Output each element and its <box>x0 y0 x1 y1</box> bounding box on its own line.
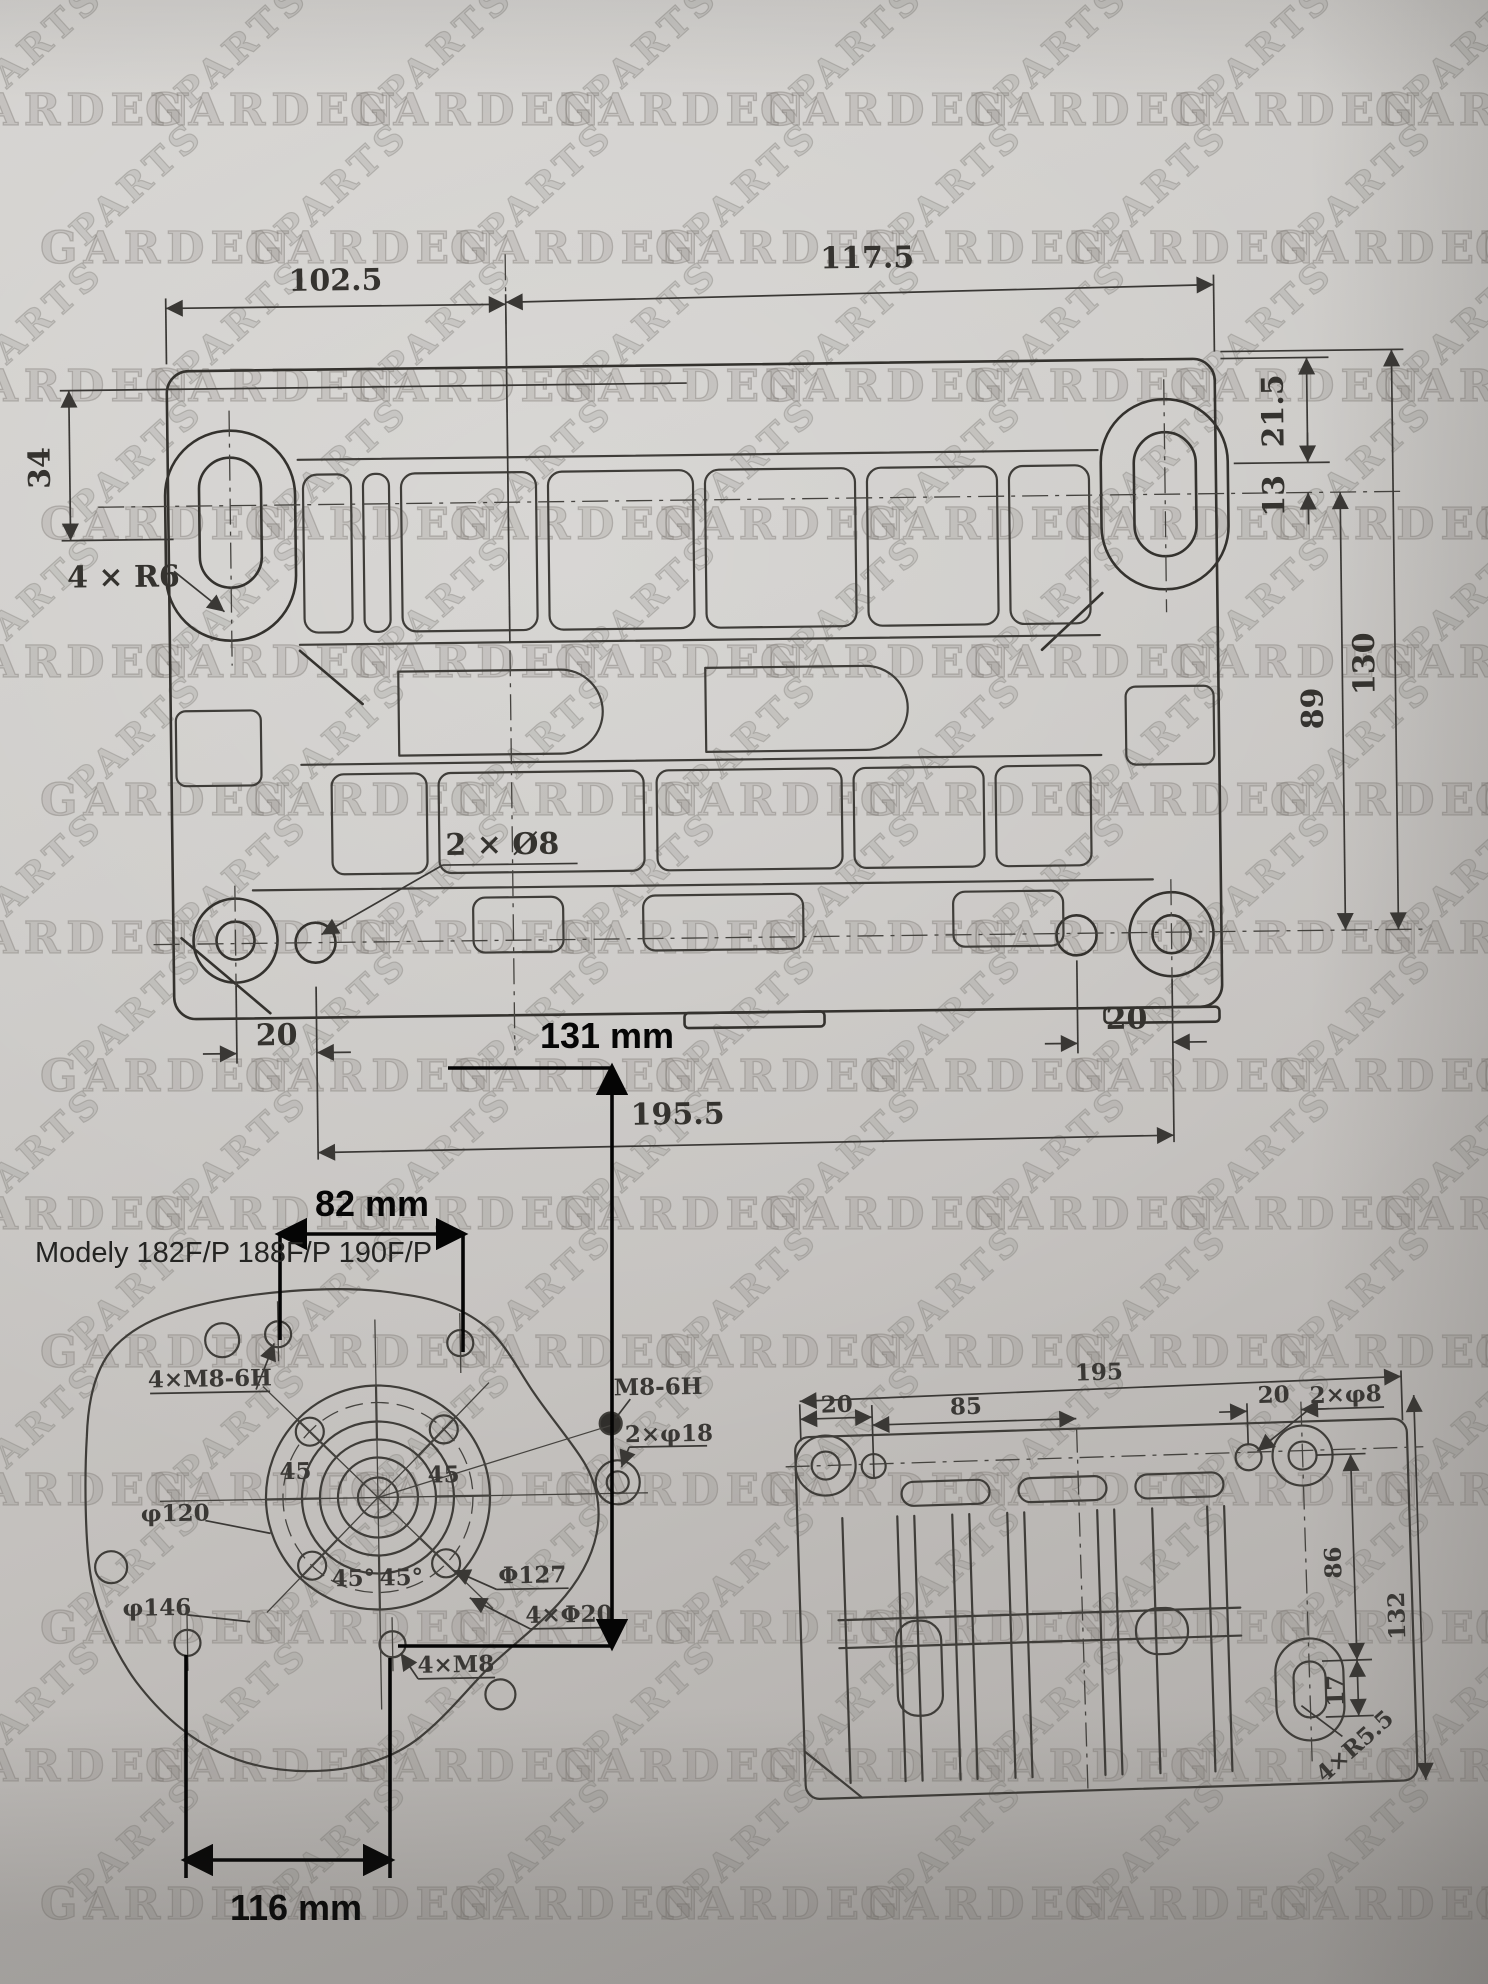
base-view-drawing: 20 85 195 20 2×φ8 86 132 17 4×R5.5 <box>783 1349 1434 1805</box>
dim-130: 130 <box>1347 632 1383 695</box>
base-dim-17: 17 <box>1321 1674 1349 1707</box>
base-dim-132: 132 <box>1383 1591 1411 1640</box>
angle-45-a: 45 <box>279 1458 311 1486</box>
label-4xphi20: 4×Φ20 <box>525 1600 613 1629</box>
top-view-drawing: 102.5 117.5 21.5 13 34 4 × R6 2 × Ø8 89 … <box>20 234 1426 1163</box>
dim-195-5: 195.5 <box>630 1097 724 1133</box>
label-phi146: φ146 <box>122 1594 191 1622</box>
dowel-hole <box>595 1460 640 1505</box>
base-dim-195: 195 <box>1074 1358 1123 1386</box>
dim-20-left: 20 <box>256 1018 298 1054</box>
technical-drawing-canvas: 102.5 117.5 21.5 13 34 4 × R6 2 × Ø8 89 … <box>0 0 1488 1984</box>
overlay-dim-131mm: 131 mm <box>540 1015 674 1056</box>
label-phi127: Φ127 <box>498 1561 567 1589</box>
label-4xr6: 4 × R6 <box>67 559 180 595</box>
label-m8-6h: M8-6H <box>613 1373 702 1402</box>
label-2xd8: 2 × Ø8 <box>445 827 559 863</box>
base-dim-85: 85 <box>949 1393 982 1421</box>
dim-34: 34 <box>22 447 58 489</box>
dim-117-5: 117.5 <box>820 240 914 276</box>
label-4xm8: 4×M8 <box>417 1651 494 1679</box>
label-phi120: φ120 <box>141 1499 210 1527</box>
scanned-page: PARTSGARDENPARTSGARDENPARTSGARDENPARTSGA… <box>0 0 1488 1984</box>
label-2xphi18: 2×φ18 <box>625 1420 714 1449</box>
crankcase-outline <box>82 1285 603 1775</box>
base-dim-20-left: 20 <box>820 1391 853 1419</box>
base-label-4xr5-5: 4×R5.5 <box>1311 1705 1399 1788</box>
angle-45-d: 45° <box>379 1564 423 1592</box>
overlay-dim-82mm: 82 mm <box>315 1183 429 1224</box>
rib-pattern <box>173 449 1217 957</box>
label-4xm8-6h: 4×M8-6H <box>148 1364 272 1393</box>
dim-102-5: 102.5 <box>288 263 382 299</box>
crankcase-view-drawing: 4×M8-6H M8-6H 2×φ18 φ120 φ146 45 45 45° … <box>82 1283 719 1775</box>
overlay-dim-116mm: 116 mm <box>230 1887 362 1928</box>
base-label-2xphi8: 2×φ8 <box>1309 1380 1382 1409</box>
models-caption: Modely 182F/P 188F/P 190F/P <box>35 1237 432 1269</box>
angle-45-b: 45 <box>427 1461 459 1489</box>
dim-20-right: 20 <box>1105 1001 1147 1037</box>
phi8-hole <box>1235 1444 1262 1471</box>
angle-45-c: 45° <box>331 1565 375 1593</box>
base-dim-86: 86 <box>1319 1546 1347 1579</box>
dim-13: 13 <box>1257 475 1293 517</box>
dim-21-5: 21.5 <box>1256 374 1292 448</box>
dim-89: 89 <box>1296 687 1332 729</box>
base-dim-20-right: 20 <box>1257 1381 1290 1409</box>
